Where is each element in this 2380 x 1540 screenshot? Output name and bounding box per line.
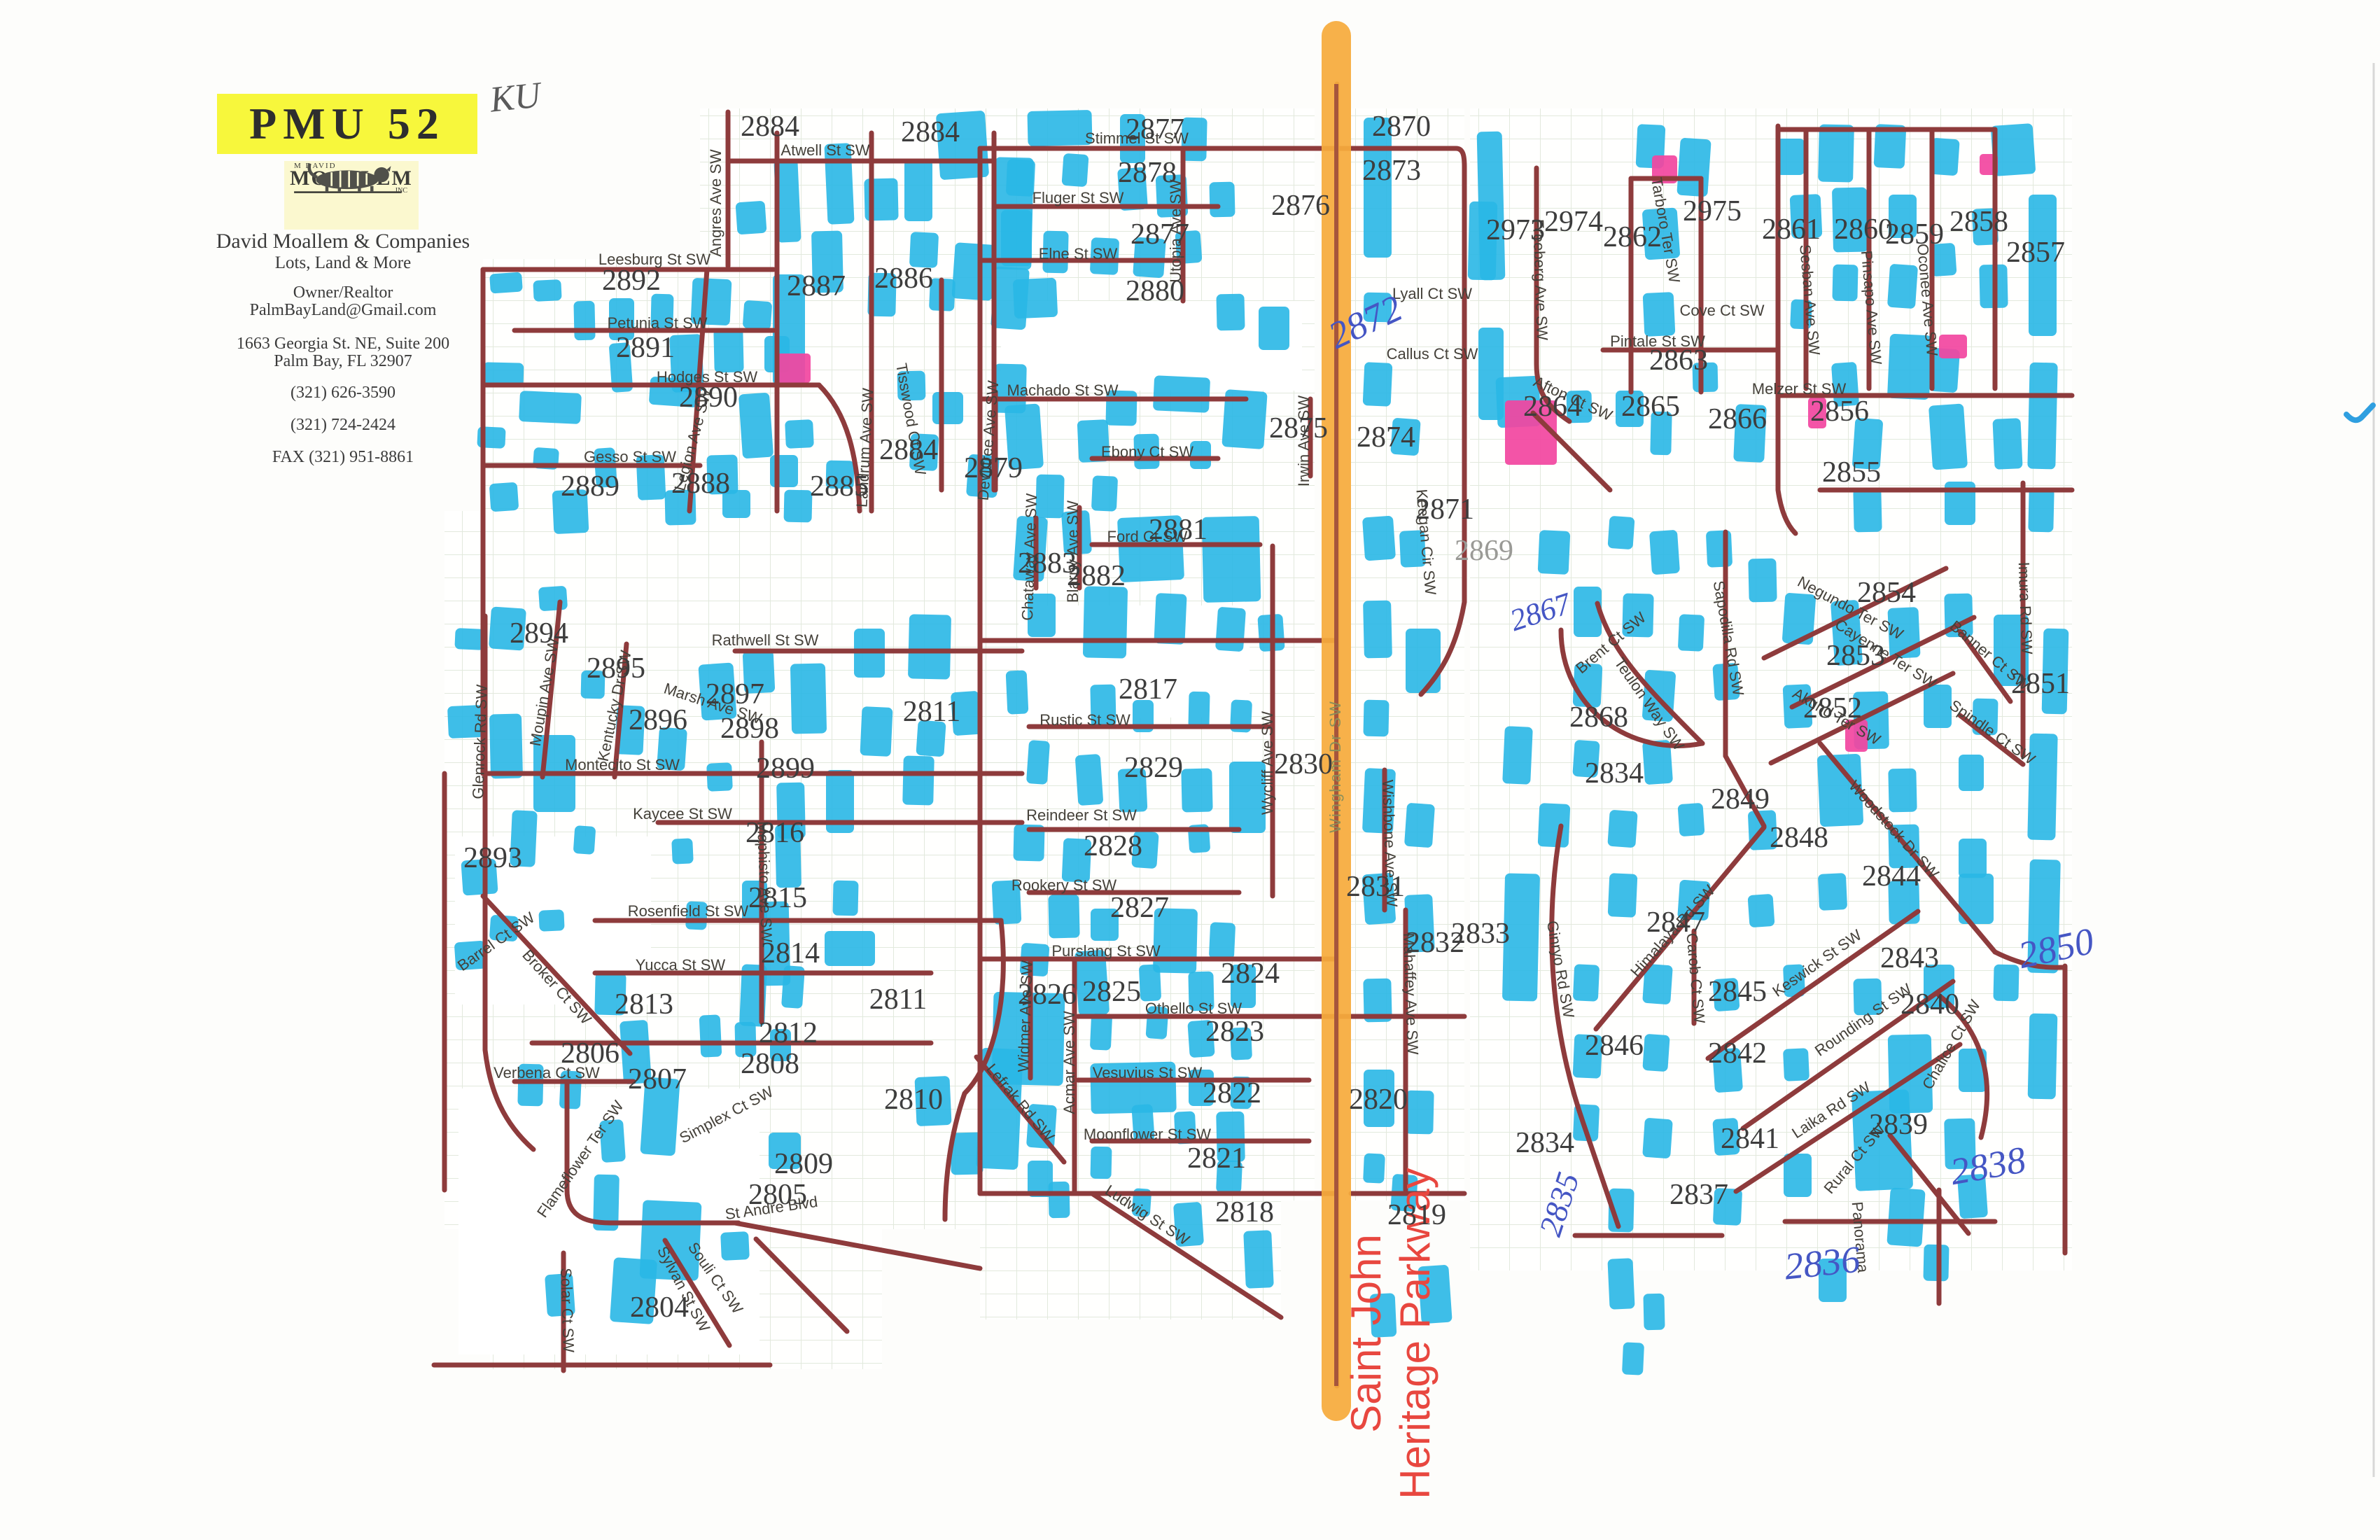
section-number: 2865: [1621, 391, 1680, 423]
section-number: 2834: [1585, 757, 1644, 790]
highlighted-lot: [1139, 964, 1161, 1001]
section-number: 2899: [756, 752, 815, 785]
company-role: Owner/Realtor: [168, 283, 518, 302]
highlighted-lot: [1678, 614, 1704, 652]
section-number: 2898: [720, 713, 779, 745]
section-number: 2844: [1862, 860, 1921, 892]
highlighted-lot: [1363, 601, 1392, 659]
highlighted-lot: [1404, 803, 1435, 848]
section-number: 2974: [1544, 206, 1603, 238]
highlighted-lot: [1363, 700, 1389, 737]
highlighted-lot: [1181, 769, 1212, 813]
company-phone2: (321) 724-2424: [168, 416, 518, 435]
street-label: Purslang St SW: [1051, 942, 1161, 960]
highlighted-lot: [1013, 278, 1058, 319]
highlighted-lot: [1706, 530, 1732, 568]
highlighted-lot: [699, 1014, 722, 1057]
highlighted-lot: [1363, 1153, 1385, 1183]
highlighted-lot: [1622, 1342, 1644, 1375]
section-number: 2894: [510, 617, 568, 650]
street-label: Reindeer St SW: [1026, 806, 1137, 824]
section-number: 2839: [1869, 1109, 1928, 1141]
pink-highlighted-lot: [777, 353, 811, 383]
highlighted-lot: [533, 279, 561, 302]
highlighted-lot: [735, 201, 766, 235]
highlighted-lot: [1363, 362, 1393, 407]
street-label: Rosenfield St SW: [628, 902, 749, 920]
section-number: 2890: [679, 381, 738, 414]
section-number: 2826: [1018, 979, 1077, 1011]
street-label: Montecito St SW: [565, 756, 680, 773]
section-number: 2856: [1810, 395, 1869, 428]
section-number: 2860: [1834, 213, 1893, 246]
section-number: 2825: [1082, 976, 1141, 1008]
section-number: 2847: [1646, 906, 1705, 939]
street-label: Lyall Ct SW: [1392, 285, 1472, 302]
section-number: 2813: [615, 988, 673, 1021]
street-label: Vesuvius St SW: [1093, 1064, 1203, 1081]
highlighted-lot: [1643, 1294, 1665, 1331]
street-label: Cove Ct SW: [1679, 302, 1764, 319]
section-number: 2973: [1486, 214, 1545, 246]
highlighted-lot: [1006, 159, 1035, 197]
section-number: 2821: [1187, 1142, 1246, 1175]
highlighted-lot: [1642, 1034, 1669, 1072]
highlighted-lot: [720, 1231, 750, 1261]
section-number: 2849: [1711, 783, 1770, 815]
section-number: 2833: [1451, 918, 1510, 950]
section-number: 2877: [1126, 113, 1184, 146]
section-number: 2817: [1119, 673, 1177, 706]
highlighted-lot: [832, 881, 858, 916]
section-number: 2886: [874, 262, 933, 295]
highlighted-lot: [2027, 363, 2057, 470]
section-number: 2877: [1130, 218, 1189, 251]
street-label: Solar Ct SW: [557, 1268, 577, 1353]
highlighted-lot: [1202, 516, 1261, 603]
section-number: 2864: [1523, 391, 1582, 423]
highlighted-lot: [1888, 769, 1917, 813]
highlighted-lot: [538, 586, 568, 612]
highlighted-lot: [738, 393, 773, 459]
highlighted-lot: [573, 825, 596, 855]
street-label: Rustic St SW: [1039, 711, 1130, 729]
section-number: 2822: [1203, 1077, 1261, 1109]
company-address-line1: 1663 Georgia St. NE, Suite 200: [168, 335, 518, 353]
section-number: 2866: [1708, 403, 1767, 435]
section-number: 2824: [1221, 958, 1280, 990]
highlighted-lot: [1154, 593, 1186, 645]
scan-artifacts: [2346, 63, 2374, 1477]
highlighted-lot: [1607, 1258, 1634, 1310]
section-number: 2804: [630, 1291, 689, 1324]
highlighted-lot: [1748, 559, 1777, 603]
section-number: 2885: [810, 470, 869, 503]
highlighted-lot: [1992, 418, 2022, 470]
section-number: 2884: [741, 111, 799, 143]
section-number: 2834: [1515, 1127, 1574, 1159]
company-fax: FAX (321) 951-8861: [168, 448, 518, 467]
street-label: Callus Ct SW: [1387, 345, 1478, 363]
street-label: Rookery St SW: [1011, 876, 1117, 894]
pmu-title: PMU 52: [217, 94, 477, 154]
section-number: 2875: [1269, 412, 1328, 444]
section-number: 2811: [869, 983, 927, 1016]
highlighted-lot: [1959, 755, 1984, 791]
section-number: 2878: [1118, 157, 1177, 189]
section-number: 2851: [2011, 668, 2070, 700]
highlighted-lot: [1959, 839, 1987, 878]
highlighted-lot: [1362, 516, 1396, 561]
pink-highlighted-lot: [1939, 335, 1967, 358]
street-label: Angres Ave SW: [707, 149, 724, 257]
highlighted-lot: [2028, 489, 2054, 533]
section-number: 2810: [884, 1084, 943, 1116]
section-number: 2823: [1205, 1016, 1264, 1048]
section-number: 2975: [1683, 195, 1742, 227]
section-number: 2814: [761, 937, 820, 969]
highlighted-lot: [573, 301, 595, 341]
highlighted-lot: [1243, 1230, 1274, 1289]
street-label: Ebony Ct SW: [1101, 443, 1193, 461]
highlighted-lot: [1075, 754, 1104, 806]
section-number: 2829: [1124, 752, 1183, 784]
section-number: 2807: [628, 1063, 687, 1095]
highlighted-lot: [1538, 803, 1571, 848]
moallem-logo: M DAVID MOALLEM INC: [284, 161, 419, 230]
highlighted-lot: [1818, 124, 1854, 182]
tiger-icon: [284, 161, 410, 196]
section-number: 2873: [1362, 155, 1421, 187]
street-label: Kaycee St SW: [633, 805, 732, 822]
section-number: 2896: [629, 704, 687, 736]
blue-check-mark: [2346, 405, 2373, 420]
highlighted-lot: [1887, 264, 1918, 309]
street-label: Fluger St SW: [1032, 189, 1124, 206]
section-number: 2820: [1349, 1084, 1408, 1116]
company-email: PalmBayLand@Gmail.com: [168, 301, 518, 320]
highlighted-lot: [1153, 375, 1210, 413]
highlighted-lot: [902, 756, 934, 806]
section-number: 2881: [1149, 514, 1207, 546]
section-number: 2892: [602, 265, 661, 297]
section-number: 2854: [1857, 577, 1916, 609]
street-label: Gesso St SW: [584, 448, 676, 465]
highlighted-lot: [2028, 1014, 2058, 1100]
highlighted-lot: [1923, 1245, 1949, 1282]
highlighted-lot: [1747, 894, 1774, 927]
company-address-line2: Palm Bay, FL 32907: [168, 352, 518, 371]
highlighted-lot: [1928, 403, 1968, 470]
highlighted-lot: [1406, 629, 1441, 693]
section-number: 2871: [1415, 493, 1474, 526]
parkway-label-line1: Saint John: [1343, 1234, 1389, 1433]
street-label: Petunia St SW: [607, 314, 707, 332]
section-number: 2843: [1880, 942, 1939, 974]
section-number: 2855: [1822, 456, 1881, 489]
highlighted-lot: [1783, 1048, 1809, 1081]
highlighted-lot: [454, 628, 484, 650]
highlighted-lot: [1502, 726, 1533, 785]
highlighted-lot: [1676, 138, 1711, 197]
street-label: Othello St SW: [1145, 1000, 1242, 1017]
highlighted-lot: [1027, 110, 1092, 146]
company-tagline: Lots, Land & More: [168, 253, 518, 273]
highlighted-lot: [1083, 586, 1128, 658]
street-label: Elne St SW: [1039, 245, 1118, 262]
highlighted-lot: [1091, 475, 1118, 512]
section-number: 2897: [706, 678, 764, 710]
highlighted-lot: [1026, 740, 1050, 785]
section-number: 2893: [463, 842, 522, 874]
section-number: 2852: [1803, 692, 1862, 724]
section-number: 2812: [759, 1017, 818, 1049]
section-number: 2840: [1900, 988, 1959, 1021]
section-number: 2887: [787, 270, 846, 302]
highlighted-lot: [1607, 516, 1634, 549]
highlighted-lot: [1215, 607, 1246, 652]
section-number: 2831: [1346, 871, 1405, 903]
highlighted-lot: [1574, 587, 1602, 637]
highlighted-lot: [1048, 895, 1079, 939]
highlighted-lot: [489, 713, 523, 778]
highlighted-lot: [743, 300, 773, 330]
section-number: 2853: [1826, 640, 1885, 672]
highlighted-lot: [1608, 873, 1638, 918]
highlighted-lot: [790, 663, 827, 734]
highlighted-lot: [860, 706, 892, 757]
section-number: 2889: [561, 470, 619, 503]
section-number: 2848: [1770, 822, 1828, 854]
highlighted-lot: [1405, 1091, 1434, 1135]
section-number: 2869: [1455, 535, 1513, 567]
section-number: 2816: [745, 817, 804, 849]
section-number: 2846: [1585, 1030, 1644, 1062]
highlighted-lot: [908, 614, 951, 679]
handwritten-initials: KU: [488, 74, 542, 120]
section-number: 2884: [901, 116, 960, 148]
highlighted-lot: [1607, 810, 1637, 848]
highlighted-lot: [1643, 292, 1676, 337]
highlighted-lot: [785, 419, 814, 449]
highlighted-lot: [538, 909, 564, 932]
highlighted-lot: [1818, 873, 1847, 911]
section-number: 2815: [748, 882, 807, 914]
street-label: Atwell St SW: [780, 141, 869, 159]
handwritten-number: 2836: [1782, 1238, 1862, 1288]
highlighted-lot: [1216, 294, 1245, 331]
section-number: 2819: [1387, 1199, 1446, 1231]
highlighted-lot: [1188, 692, 1210, 729]
section-number: 2806: [561, 1037, 619, 1070]
highlighted-lot: [1006, 670, 1029, 714]
highlighted-lot: [1853, 489, 1882, 533]
section-number: 2808: [741, 1048, 799, 1080]
highlighted-lot: [1886, 1187, 1925, 1247]
street-label: Yucca St SW: [636, 956, 726, 974]
highlighted-lot: [1924, 685, 1952, 728]
highlighted-lot: [1538, 530, 1571, 575]
section-number: 2879: [964, 452, 1023, 484]
section-number: 2818: [1215, 1196, 1274, 1228]
highlighted-lot: [671, 838, 694, 864]
street-label: Imura Rd SW: [2015, 561, 2036, 654]
highlighted-lot: [825, 931, 875, 966]
highlighted-lot: [1001, 210, 1032, 266]
section-number: 2874: [1357, 421, 1415, 454]
highlighted-lot: [1677, 803, 1704, 836]
section-number: 2888: [671, 468, 730, 500]
highlighted-lot: [932, 392, 963, 424]
section-number: 2809: [774, 1148, 833, 1180]
section-number: 2857: [2006, 237, 2065, 269]
highlighted-lot: [1573, 964, 1599, 1002]
section-number: 2891: [616, 332, 675, 364]
section-number: 2884: [879, 434, 938, 466]
highlighted-lot: [1090, 1147, 1112, 1179]
section-number: 2882: [1067, 560, 1126, 592]
company-name: David Moallem & Companies: [168, 230, 518, 253]
street-label: Moonflower St SW: [1084, 1126, 1211, 1143]
highlighted-lot: [1642, 1118, 1673, 1159]
section-number: 2841: [1721, 1123, 1779, 1155]
highlighted-lot: [770, 455, 798, 487]
highlighted-lot: [519, 391, 582, 424]
highlighted-lot: [1259, 307, 1289, 350]
section-number: 2876: [1271, 190, 1330, 222]
section-number: 2811: [903, 696, 960, 728]
street-label: Acmar Ave SW: [1060, 1011, 1078, 1114]
highlighted-lot: [1209, 182, 1235, 218]
section-number: 2845: [1708, 976, 1767, 1008]
highlighted-lot: [1832, 265, 1858, 302]
street-label: Machado St SW: [1007, 381, 1119, 399]
highlighted-lot: [1649, 530, 1680, 575]
section-number: 2868: [1569, 701, 1628, 734]
highlighted-lot: [489, 482, 519, 512]
section-number: 2805: [748, 1179, 807, 1211]
section-number: 2862: [1603, 221, 1662, 253]
highlighted-lot: [1777, 139, 1805, 175]
street-label: Rathwell St SW: [712, 631, 819, 649]
section-number: 2859: [1885, 218, 1944, 251]
section-number: 2837: [1669, 1179, 1728, 1211]
highlighted-lot: [1209, 922, 1235, 960]
section-number: 2858: [1949, 206, 2008, 238]
highlighted-lot: [1993, 965, 2019, 1002]
section-number: 2828: [1084, 830, 1142, 862]
highlighted-lot: [1048, 1182, 1070, 1219]
highlighted-lot: [904, 160, 932, 221]
section-number: 2870: [1372, 111, 1431, 143]
section-number: 2861: [1762, 213, 1821, 246]
highlighted-lot: [1061, 153, 1088, 187]
section-number: 2880: [1126, 275, 1184, 307]
section-number: 2863: [1649, 344, 1708, 377]
highlighted-lot: [783, 490, 812, 523]
highlighted-lot: [951, 242, 995, 301]
scanned-map-page: Wingham Dr SWSaint JohnHeritage Parkway …: [0, 0, 2380, 1540]
section-number: 2830: [1274, 748, 1333, 780]
company-phone1: (321) 626-3590: [168, 384, 518, 402]
section-number: 2895: [587, 652, 645, 685]
section-number: 2842: [1708, 1037, 1767, 1070]
highlighted-lot: [706, 762, 733, 792]
highlighted-lot: [713, 329, 743, 373]
section-number: 2827: [1110, 892, 1169, 924]
